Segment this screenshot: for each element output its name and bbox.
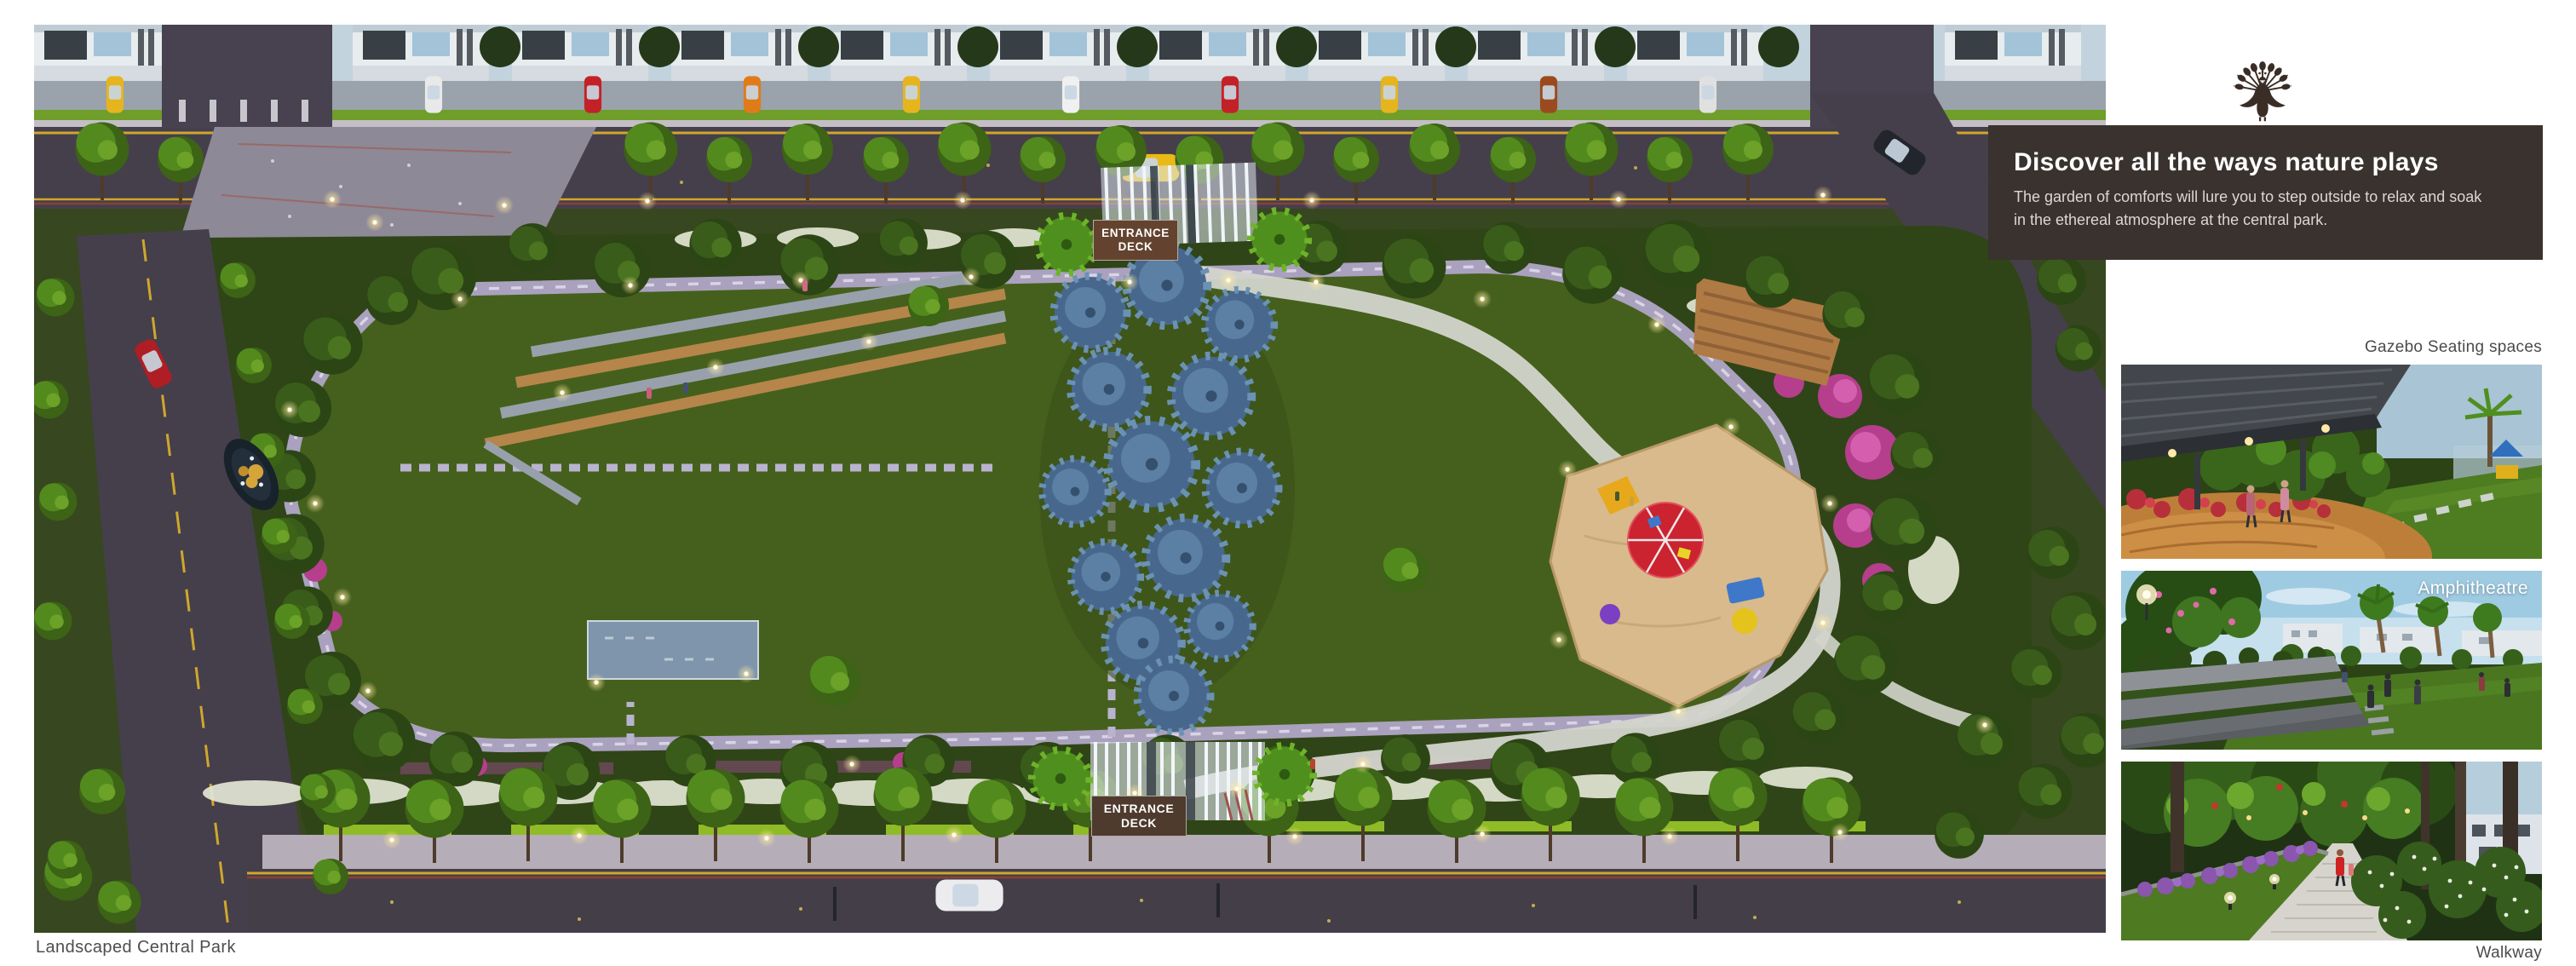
callout-title: Discover all the ways nature plays	[2014, 148, 2517, 177]
brochure-page: ENTRANCE DECK ENTRANCE DECK Landscaped C…	[0, 0, 2576, 966]
callout-box: Discover all the ways nature plays The g…	[1988, 125, 2543, 260]
entrance-deck-line2: DECK	[1092, 816, 1186, 831]
callout-body-line2: in the ethereal atmosphere at the centra…	[2014, 209, 2517, 232]
callout-body-line1: The garden of comforts will lure you to …	[2014, 186, 2517, 209]
entrance-deck-sign-top: ENTRANCE DECK	[1093, 220, 1178, 261]
central-park-aerial-illustration	[34, 25, 2106, 933]
gallery-label-walkway: Walkway	[2121, 944, 2542, 963]
walkway-thumbnail	[2121, 762, 2542, 940]
hero-caption: Landscaped Central Park	[36, 938, 236, 957]
entrance-deck-line2: DECK	[1094, 240, 1177, 254]
reflecting-pool	[588, 621, 758, 679]
peacock-logo-icon	[2222, 44, 2303, 124]
central-park-render: ENTRANCE DECK ENTRANCE DECK	[34, 25, 2106, 933]
gazebo-thumbnail	[2121, 365, 2542, 559]
entrance-deck-line1: ENTRANCE	[1092, 802, 1186, 816]
entrance-deck-sign-bottom: ENTRANCE DECK	[1091, 796, 1187, 837]
entrance-deck-line1: ENTRANCE	[1094, 227, 1177, 240]
gallery-label-amphitheatre: Amphitheatre	[2418, 578, 2528, 599]
amphitheatre-thumbnail: Amphitheatre	[2121, 571, 2542, 750]
gazebo-illustration	[2121, 365, 2542, 559]
white-car	[935, 880, 1003, 911]
walkway-illustration	[2121, 762, 2542, 940]
gallery-label-gazebo: Gazebo Seating spaces	[2121, 338, 2542, 357]
